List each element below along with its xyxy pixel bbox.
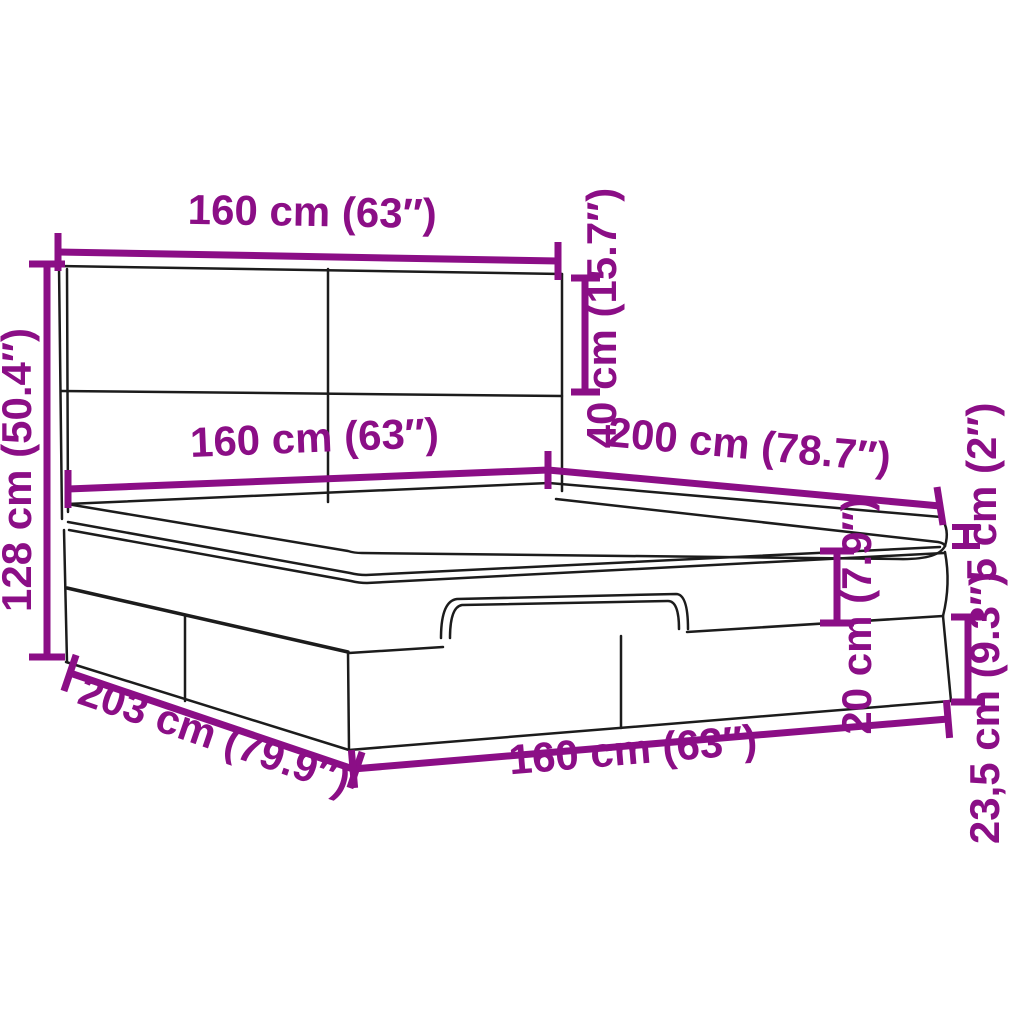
label-headboard-width: 160 cm (63″) <box>187 186 437 237</box>
label-mattress-width: 160 cm (63″) <box>189 409 440 466</box>
label-topper-thickness: 5 cm (2″) <box>958 403 1005 582</box>
label-storage-height: 23,5 cm (9.3″) <box>961 572 1008 844</box>
label-mattress-length: 200 cm (78.7″) <box>606 408 893 481</box>
label-total-height: 128 cm (50.4″) <box>0 328 40 612</box>
bed-dimension-diagram: 160 cm (63″) 40 cm (15.7″) 128 cm (50.4″… <box>0 0 1024 1024</box>
label-upper-box-height: 20 cm (7.9″) <box>833 497 880 734</box>
dimension-labels: 160 cm (63″) 40 cm (15.7″) 128 cm (50.4″… <box>0 186 1008 844</box>
label-frame-width: 160 cm (63″) <box>507 716 759 784</box>
bed-outline <box>59 266 951 750</box>
label-frame-length: 203 cm (79.9″) <box>73 667 357 804</box>
lift-handle <box>441 594 688 638</box>
diagram-canvas: 160 cm (63″) 40 cm (15.7″) 128 cm (50.4″… <box>0 0 1024 1024</box>
